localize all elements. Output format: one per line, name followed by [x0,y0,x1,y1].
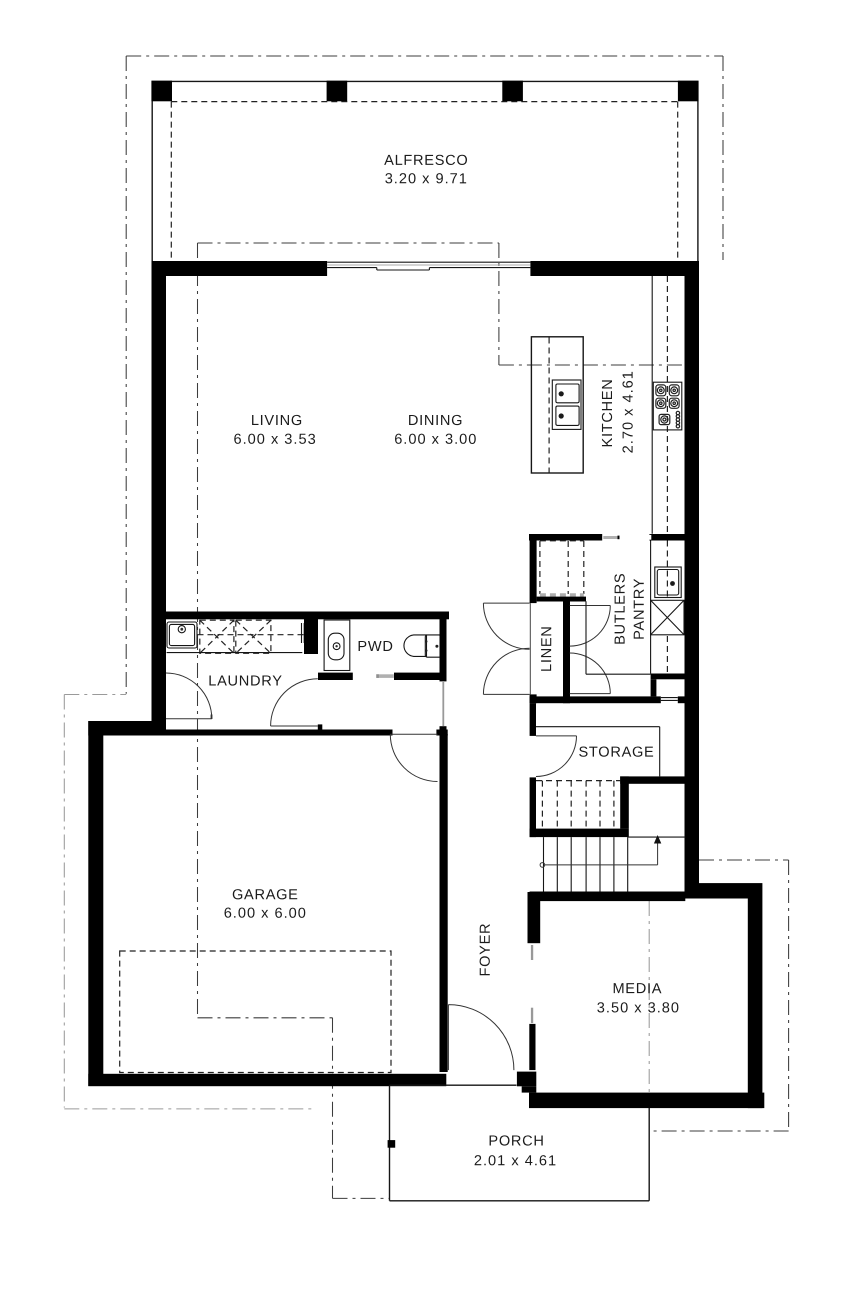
svg-text:FOYER: FOYER [478,923,494,977]
svg-text:2.01 x 4.61: 2.01 x 4.61 [474,1153,557,1169]
svg-text:6.00 x 3.53: 6.00 x 3.53 [233,432,316,448]
svg-text:KITCHEN: KITCHEN [600,379,616,448]
svg-text:LINEN: LINEN [539,625,555,671]
svg-text:6.00 x 3.00: 6.00 x 3.00 [394,432,477,448]
svg-text:PORCH: PORCH [488,1133,544,1149]
svg-text:2.70 x 4.61: 2.70 x 4.61 [621,370,637,453]
svg-text:3.50 x 3.80: 3.50 x 3.80 [597,1000,680,1016]
svg-text:STORAGE: STORAGE [578,745,654,761]
svg-text:LAUNDRY: LAUNDRY [208,673,282,689]
svg-text:GARAGE: GARAGE [232,887,299,903]
svg-text:ALFRESCO: ALFRESCO [384,153,468,169]
svg-text:PWD: PWD [357,639,393,655]
svg-text:PANTRY: PANTRY [632,578,648,640]
svg-text:BUTLERS: BUTLERS [613,573,629,645]
svg-text:3.20 x 9.71: 3.20 x 9.71 [385,171,468,187]
svg-text:DINING: DINING [408,413,463,429]
svg-text:6.00 x 6.00: 6.00 x 6.00 [224,906,307,922]
svg-text:MEDIA: MEDIA [612,981,662,997]
svg-text:LIVING: LIVING [251,413,303,429]
